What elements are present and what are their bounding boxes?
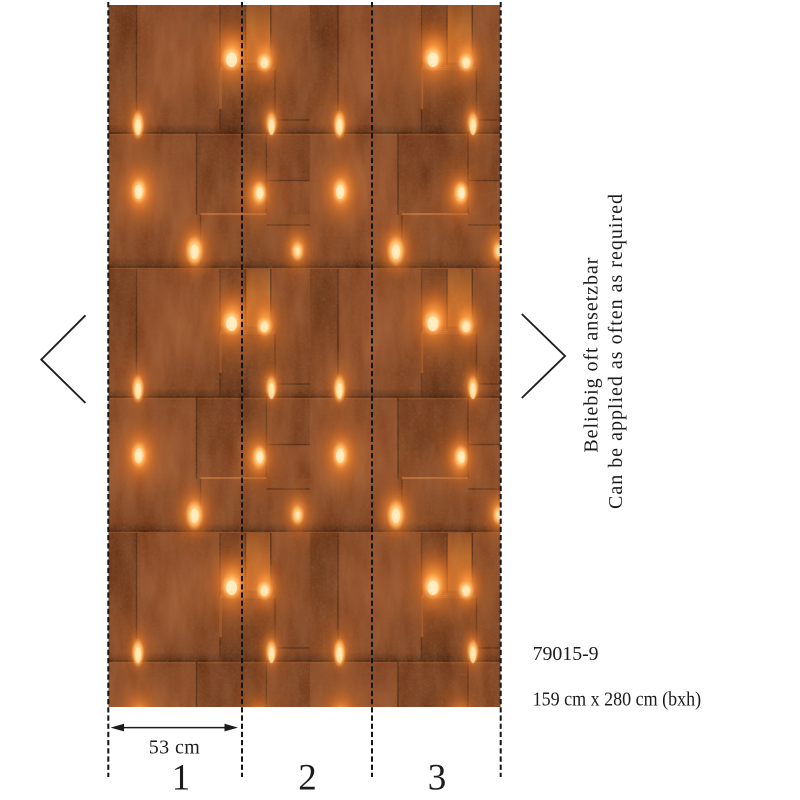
svg-text:Can be applied as often as req: Can be applied as often as required <box>605 194 627 509</box>
svg-text:Beliebig oft ansetzbar: Beliebig oft ansetzbar <box>581 257 603 452</box>
svg-text:2: 2 <box>298 757 317 798</box>
svg-text:79015-9: 79015-9 <box>533 643 599 665</box>
svg-text:1: 1 <box>172 757 191 798</box>
svg-text:159 cm x 280 cm (bxh): 159 cm x 280 cm (bxh) <box>533 689 702 711</box>
svg-text:3: 3 <box>428 757 447 798</box>
svg-text:53 cm: 53 cm <box>149 737 200 759</box>
